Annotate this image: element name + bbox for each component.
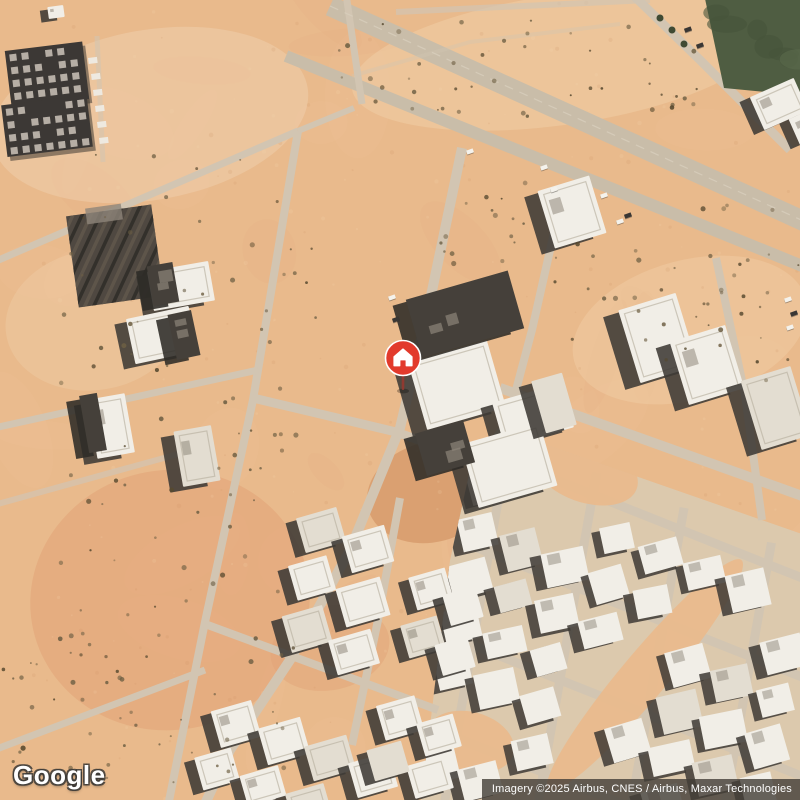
satellite-imagery[interactable] — [0, 0, 800, 800]
place-marker[interactable] — [381, 338, 425, 398]
imagery-attribution: Imagery ©2025 Airbus, CNES / Airbus, Max… — [482, 779, 800, 800]
home-icon — [381, 338, 425, 398]
google-maps-satellite-view: Google Imagery ©2025 Airbus, CNES / Airb… — [0, 0, 800, 800]
google-logo[interactable]: Google — [13, 760, 106, 791]
